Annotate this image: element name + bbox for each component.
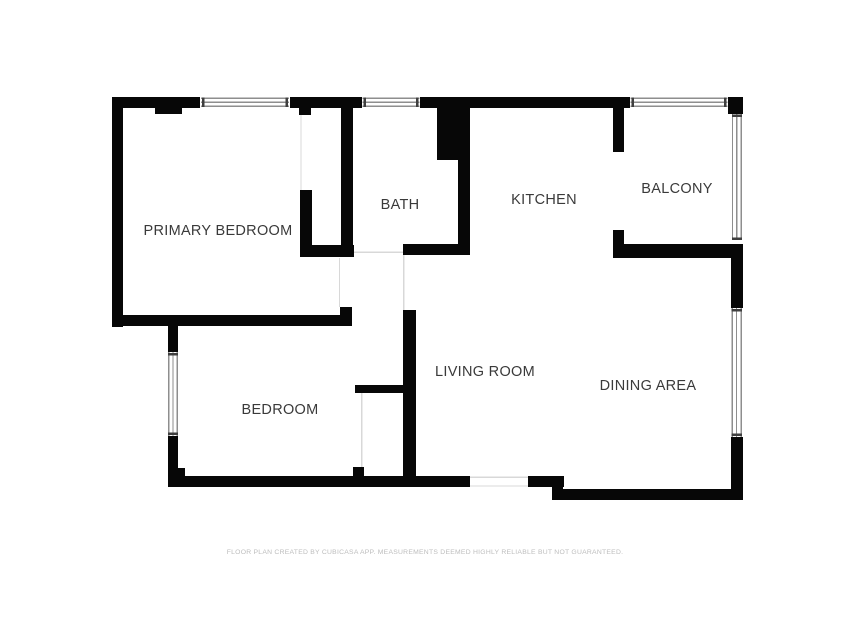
door-opening bbox=[300, 115, 301, 190]
room-label-bedroom: BEDROOM bbox=[241, 402, 318, 418]
wall bbox=[299, 106, 311, 115]
wall bbox=[613, 230, 624, 245]
room-label-balcony: BALCONY bbox=[641, 181, 712, 197]
room-labels: PRIMARY BEDROOM BATH KITCHEN BALCONY BED… bbox=[144, 181, 713, 418]
wall bbox=[155, 106, 182, 114]
footer-disclaimer: FLOOR PLAN CREATED BY CUBICASA APP. MEAS… bbox=[227, 549, 624, 556]
wall bbox=[613, 244, 743, 258]
wall bbox=[728, 97, 743, 114]
room-label-dining-area: DINING AREA bbox=[600, 378, 697, 394]
door-opening bbox=[470, 477, 528, 478]
wall bbox=[341, 97, 353, 257]
wall bbox=[353, 467, 364, 477]
wall bbox=[613, 97, 624, 152]
wall bbox=[112, 97, 123, 327]
room-label-living-room: LIVING ROOM bbox=[435, 364, 535, 380]
wall bbox=[168, 476, 470, 487]
wall bbox=[403, 244, 470, 255]
wall bbox=[112, 315, 352, 326]
wall bbox=[552, 489, 743, 500]
wall bbox=[458, 97, 470, 255]
wall bbox=[168, 436, 178, 487]
door-opening bbox=[361, 393, 362, 467]
wall bbox=[731, 244, 743, 308]
wall bbox=[420, 97, 630, 108]
wall bbox=[528, 476, 564, 487]
floor-plan: PRIMARY BEDROOM BATH KITCHEN BALCONY BED… bbox=[0, 0, 850, 620]
door-opening bbox=[403, 255, 404, 310]
door-opening bbox=[470, 485, 528, 486]
wall bbox=[168, 326, 178, 352]
wall bbox=[437, 108, 460, 160]
room-label-kitchen: KITCHEN bbox=[511, 192, 577, 208]
door-opening bbox=[354, 252, 403, 253]
room-label-primary-bedroom: PRIMARY BEDROOM bbox=[144, 223, 293, 239]
floor-plan-page: PRIMARY BEDROOM BATH KITCHEN BALCONY BED… bbox=[0, 0, 850, 620]
wall bbox=[177, 468, 185, 477]
walls bbox=[112, 97, 743, 500]
wall bbox=[403, 310, 416, 487]
wall bbox=[340, 307, 352, 326]
room-label-bath: BATH bbox=[381, 197, 420, 213]
wall bbox=[355, 385, 405, 393]
door-opening bbox=[339, 258, 340, 307]
